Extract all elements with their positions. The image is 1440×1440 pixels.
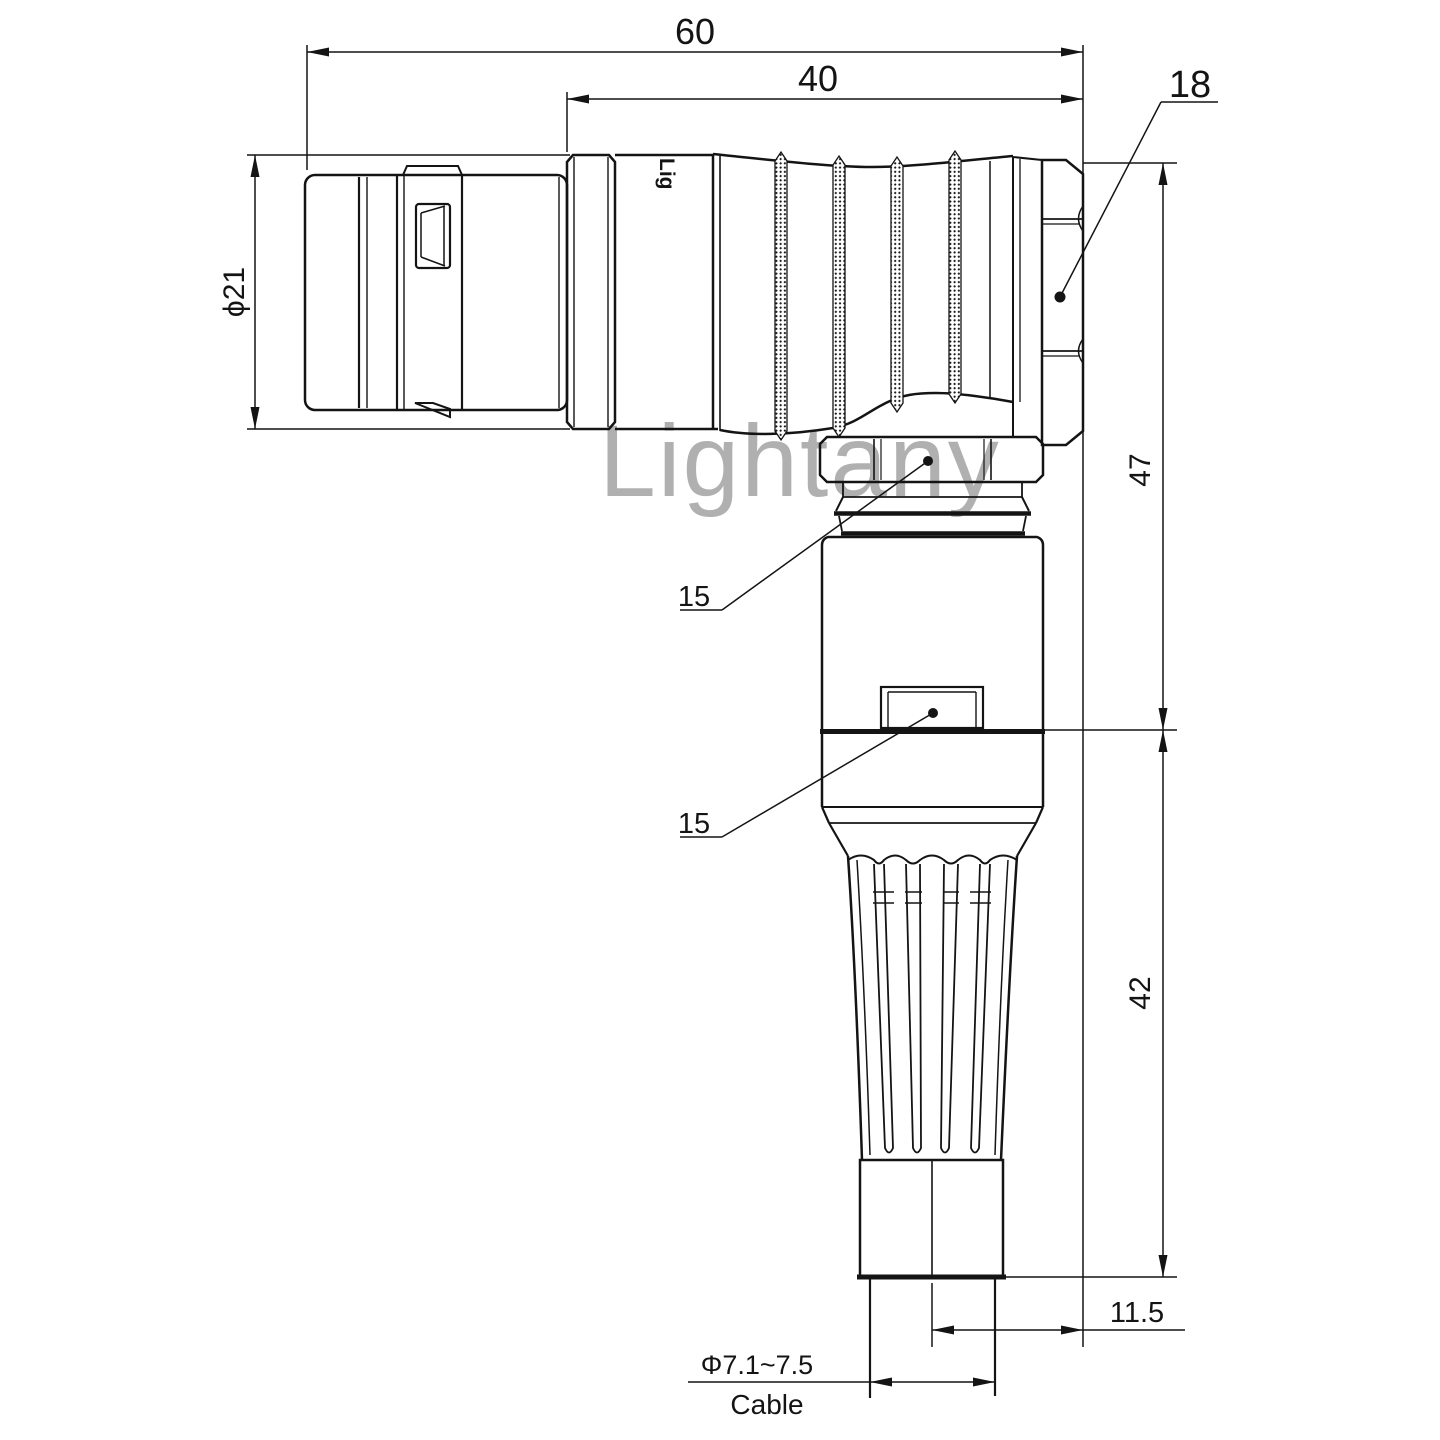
dim-front-diameter (247, 155, 570, 429)
dim-front-diameter-label: ϕ21 (218, 267, 251, 317)
dim-overall-length (307, 45, 1083, 1347)
strain-relief-edge (1001, 856, 1017, 1160)
strain-relief-slot (941, 864, 958, 1153)
arrowhead (1061, 95, 1083, 104)
arrowhead (870, 1378, 892, 1387)
elbow-lower-body (822, 733, 1043, 807)
coupling-flange (567, 155, 615, 429)
dim-backshell-length-label: 40 (798, 58, 838, 99)
knurl-band (775, 152, 787, 440)
arrowhead (1159, 730, 1168, 752)
backshell-top-edge (713, 154, 1013, 167)
technical-drawing-page: Lightany Lig (0, 0, 1440, 1440)
dim-cable-offset-label: 11.5 (1110, 1297, 1164, 1329)
knurl-band (833, 156, 845, 437)
arrowhead (973, 1378, 995, 1387)
dim-upper-height-label: 47 (1124, 453, 1157, 486)
strain-relief (829, 823, 1036, 1160)
leader-dot (1055, 292, 1066, 303)
arrowhead (251, 407, 260, 429)
mating-nut (1042, 160, 1083, 445)
strain-relief-finger-line (995, 860, 1008, 1155)
dim-overall-length-label: 60 (675, 11, 715, 52)
cable-latch (881, 687, 983, 728)
dim-upper-height (1043, 163, 1177, 730)
strain-relief-slot (906, 864, 921, 1153)
arrowhead (307, 48, 329, 57)
arrowhead (1061, 1326, 1083, 1335)
leader-dot (923, 456, 933, 466)
elbow-body (820, 537, 1045, 823)
cable-collar (857, 1160, 1006, 1277)
strain-relief-slot (971, 864, 990, 1153)
mid-body (615, 155, 718, 429)
leader-dot (928, 708, 938, 718)
cable-label: Cable (730, 1389, 803, 1420)
knurl-band (949, 151, 961, 403)
brand-print: Lig (655, 158, 678, 190)
strain-relief-crown (848, 856, 1017, 864)
arrowhead (1159, 708, 1168, 730)
strain-relief-skirt (829, 823, 1036, 856)
dim-nut-leader (1055, 102, 1219, 303)
arrowhead (251, 155, 260, 177)
elbow-band (839, 516, 1026, 531)
leader-line (1060, 102, 1161, 297)
arrowhead (1159, 163, 1168, 185)
sleeve-key-tab (403, 166, 462, 175)
leader-15-upper-label: 15 (678, 581, 710, 613)
elbow-taper (822, 807, 1043, 823)
arrowhead (1061, 48, 1083, 57)
arrowhead (567, 95, 589, 104)
dim-cable-diameter-label: Φ7.1~7.5 (701, 1350, 813, 1380)
arrowhead (1159, 1255, 1168, 1277)
strain-relief-finger-line (857, 860, 870, 1155)
backshell-band-top (1013, 157, 1042, 160)
elbow-body-outline (822, 537, 1043, 729)
nut-outline (1042, 160, 1083, 445)
knurl-bands (775, 151, 961, 440)
connector-drawing: Lightany Lig (0, 0, 1440, 1440)
strain-relief-slot (874, 864, 893, 1153)
sleeve-outline (305, 175, 567, 410)
dim-nut-size-label: 18 (1169, 64, 1211, 106)
watermark: Lightany (599, 404, 1001, 518)
knurl-band (891, 157, 903, 412)
backshell (713, 154, 1042, 437)
plug-sleeve (305, 166, 567, 417)
dim-lower-height-label: 42 (1124, 976, 1157, 1009)
dim-backshell-length (567, 92, 1083, 152)
arrowhead (932, 1326, 954, 1335)
sleeve-window-bevel (421, 206, 445, 266)
leader-15-lower-label: 15 (678, 808, 710, 840)
